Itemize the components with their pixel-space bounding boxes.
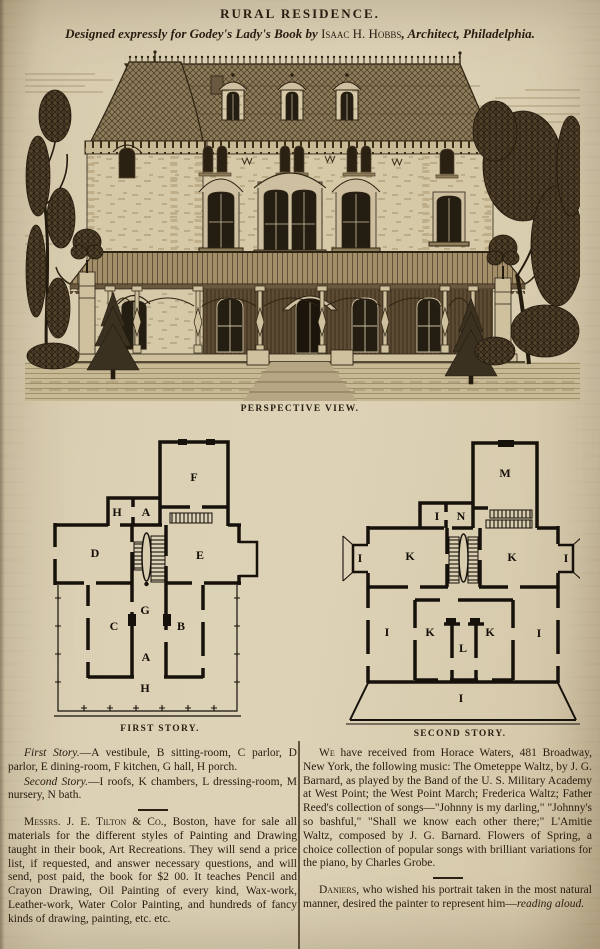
room-label: D: [91, 547, 100, 559]
room-label: I: [459, 692, 464, 704]
room-label: I: [564, 552, 569, 564]
paragraph-lead: We: [319, 747, 335, 759]
room-label: H: [140, 682, 149, 694]
first-story-caption: FIRST STORY.: [50, 724, 270, 734]
room-label: I: [385, 626, 390, 638]
page-title: RURAL RESIDENCE.: [0, 6, 600, 22]
room-label: L: [459, 642, 467, 654]
second-story-plan-drawing: [340, 430, 580, 730]
room-label: M: [499, 467, 510, 479]
room-label: I: [537, 627, 542, 639]
room-label: A: [142, 651, 151, 663]
paragraph-lead: Daniers: [319, 884, 356, 896]
house-engraving: [25, 46, 580, 401]
veranda-roof: [70, 252, 525, 284]
magazine-page: RURAL RESIDENCE. Designed expressly for …: [0, 0, 600, 949]
paragraph-lead: Messrs. J. E. Tilton & Co.: [24, 816, 164, 828]
column-divider: [298, 741, 300, 949]
chimney: [211, 76, 223, 94]
page-gutter-shade: [0, 0, 5, 949]
left-column: First Story.—A vestibule, B sitting-room…: [8, 747, 297, 928]
first-story-plan: F H A D E G C B A H: [50, 430, 270, 735]
room-label: E: [196, 549, 204, 561]
italic-ending: reading aloud.: [517, 898, 584, 910]
section-divider: [138, 809, 168, 811]
page-subtitle: Designed expressly for Godey's Lady's Bo…: [0, 26, 600, 42]
room-label: I: [435, 510, 440, 522]
room-label: N: [457, 510, 466, 522]
tree-left: [26, 90, 79, 369]
room-label: B: [177, 620, 185, 632]
room-label: C: [110, 620, 119, 632]
legend-lead: Second Story.: [24, 776, 88, 788]
porch-floor: [77, 354, 517, 362]
second-story-caption: SECOND STORY.: [340, 729, 580, 739]
first-story-plan-drawing: [50, 430, 270, 735]
daniers-paragraph: Daniers, who wished his portrait taken i…: [303, 884, 592, 912]
second-story-plan: M I N K K I I I K K L I I: [340, 430, 580, 730]
tilton-paragraph: Messrs. J. E. Tilton & Co., Boston, have…: [8, 816, 297, 926]
room-label: F: [190, 471, 197, 483]
room-label: H: [112, 506, 121, 518]
room-label: K: [405, 550, 414, 562]
room-label: K: [425, 626, 434, 638]
music-paragraph: We have received from Horace Waters, 481…: [303, 747, 592, 871]
room-label: I: [358, 552, 363, 564]
second-story-legend: Second Story.—I roofs, K chambers, L dre…: [8, 776, 297, 804]
section-divider: [433, 877, 463, 879]
room-label: G: [140, 604, 149, 616]
room-label: A: [142, 506, 151, 518]
perspective-caption: PERSPECTIVE VIEW.: [0, 404, 600, 414]
subtitle-post: , Architect, Philadelphia.: [401, 26, 535, 41]
first-story-legend: First Story.—A vestibule, B sitting-room…: [8, 747, 297, 775]
room-label: K: [485, 626, 494, 638]
legend-lead: First Story.: [24, 747, 80, 759]
subtitle-pre: Designed expressly for Godey's Lady's Bo…: [65, 26, 321, 41]
room-label: K: [507, 551, 516, 563]
architect-name: Isaac H. Hobbs: [321, 26, 401, 41]
right-column: We have received from Horace Waters, 481…: [303, 747, 592, 913]
